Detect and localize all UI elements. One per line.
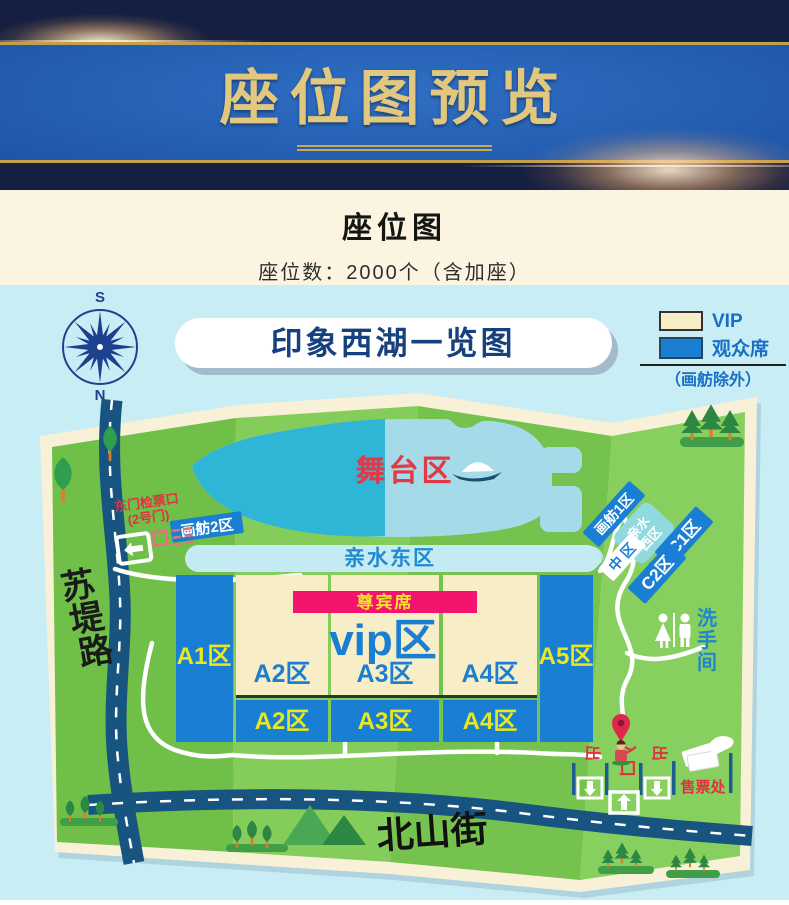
road-beishan-label: 北山街	[375, 808, 489, 857]
zone-a4-front-label: A4区	[462, 660, 519, 688]
zone-a5-label: A5区	[539, 643, 594, 670]
compass-south-label: S	[95, 289, 105, 306]
zone-a3-rear-label: A3区	[358, 708, 413, 735]
zone-a2-rear-label: A2区	[255, 708, 310, 735]
page-title: 座位图预览	[0, 45, 789, 145]
svg-text:出: 出	[650, 745, 669, 761]
legend-note: （画舫除外）	[665, 370, 761, 389]
zone-zunbin-label: 尊宾席	[357, 592, 414, 612]
restroom-label-2: 手	[697, 628, 717, 652]
header-band: 座位图预览	[0, 42, 789, 163]
map-section: S N 印象西湖一览图 VIP 观众席 （画舫除外）	[0, 285, 789, 900]
compass-icon: S N	[63, 289, 137, 404]
zone-qinshui-east-label: 亲水东区	[344, 546, 436, 570]
seat-count: 座位数：2000个（含加座）	[0, 256, 789, 285]
legend-audience-swatch	[660, 338, 702, 358]
zone-a3-front-label: A3区	[357, 660, 414, 688]
restroom-label-3: 间	[697, 651, 717, 674]
svg-text:出: 出	[583, 745, 602, 761]
dock-upper	[540, 447, 582, 473]
zone-a4-rear-label: A4区	[463, 708, 518, 735]
stage-edge-line	[236, 695, 537, 698]
stage-label: 舞台区	[356, 454, 455, 488]
legend-vip-label: VIP	[712, 311, 743, 332]
map-legend: VIP 观众席 （画舫除外）	[640, 311, 786, 389]
light-streak-bottom	[459, 165, 789, 167]
seatmap-info-card: 座位图 座位数：2000个（含加座）	[0, 190, 789, 285]
zone-a1-label: A1区	[177, 643, 232, 670]
venue-map: S N 印象西湖一览图 VIP 观众席 （画舫除外）	[0, 285, 789, 900]
seating-blocks: 尊宾席 vip区 A1区 A5区 A2区 A3区 A4区 A2区 A3区 A4区	[176, 575, 593, 742]
seatmap-title: 座位图	[0, 190, 789, 247]
map-title: 印象西湖一览图	[270, 325, 515, 361]
ticket-office-label: 售票处	[680, 778, 726, 796]
legend-vip-swatch	[660, 312, 702, 330]
exit-right-label: 出	[650, 745, 669, 761]
zone-a2-front-label: A2区	[254, 660, 311, 688]
exit-left-label: 出	[583, 745, 602, 761]
title-underline	[297, 145, 492, 151]
dock-lower	[540, 486, 582, 532]
restroom-label-1: 洗	[697, 607, 717, 630]
zone-vip-label: vip区	[329, 616, 437, 665]
legend-audience-label: 观众席	[712, 337, 769, 360]
page-header: 座位图预览	[0, 0, 789, 190]
map-title-banner: 印象西湖一览图	[175, 318, 618, 375]
